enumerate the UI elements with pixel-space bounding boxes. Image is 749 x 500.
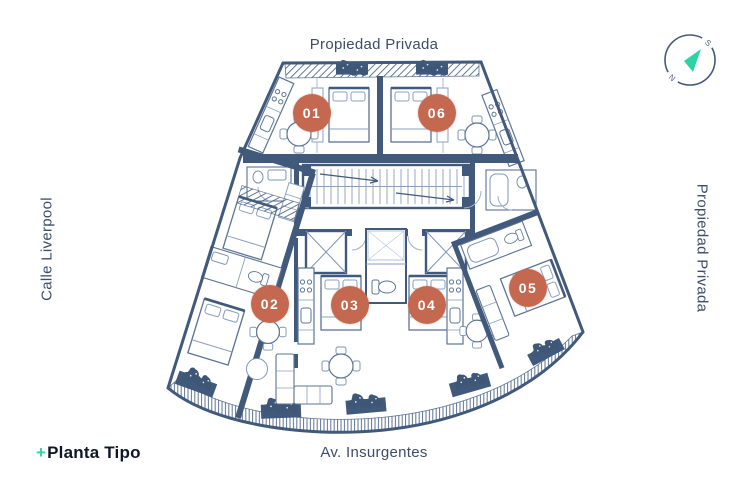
ottoman-unit-02 — [247, 359, 268, 380]
logo: +Planta Tipo — [36, 443, 141, 463]
floor-plan-drawing — [0, 0, 749, 500]
kitchen-unit-03 — [298, 268, 314, 344]
street-label-left: Calle Liverpool — [39, 197, 56, 301]
logo-text: Planta Tipo — [47, 443, 141, 462]
unit-badge-03[interactable]: 03 — [331, 286, 369, 324]
bed-unit-01 — [329, 88, 369, 142]
floor-plan-page: Propiedad Privada Calle Liverpool Propie… — [0, 0, 749, 500]
street-label-top: Propiedad Privada — [310, 36, 439, 53]
unit-badge-02[interactable]: 02 — [251, 285, 289, 323]
logo-plus-icon: + — [36, 443, 46, 462]
toilet-icon — [372, 280, 396, 294]
street-label-bottom: Av. Insurgentes — [320, 444, 427, 461]
elevator-1 — [306, 231, 346, 273]
core-bathroom — [366, 229, 406, 303]
unit-badge-01[interactable]: 01 — [293, 94, 331, 132]
unit-badge-06[interactable]: 06 — [418, 94, 456, 132]
compass: S N — [662, 32, 718, 88]
compass-needle-icon — [684, 49, 701, 72]
unit-badge-04[interactable]: 04 — [408, 286, 446, 324]
unit-badge-05[interactable]: 05 — [509, 269, 547, 307]
street-label-right: Propiedad Privada — [694, 184, 711, 313]
party-wall — [377, 76, 383, 154]
